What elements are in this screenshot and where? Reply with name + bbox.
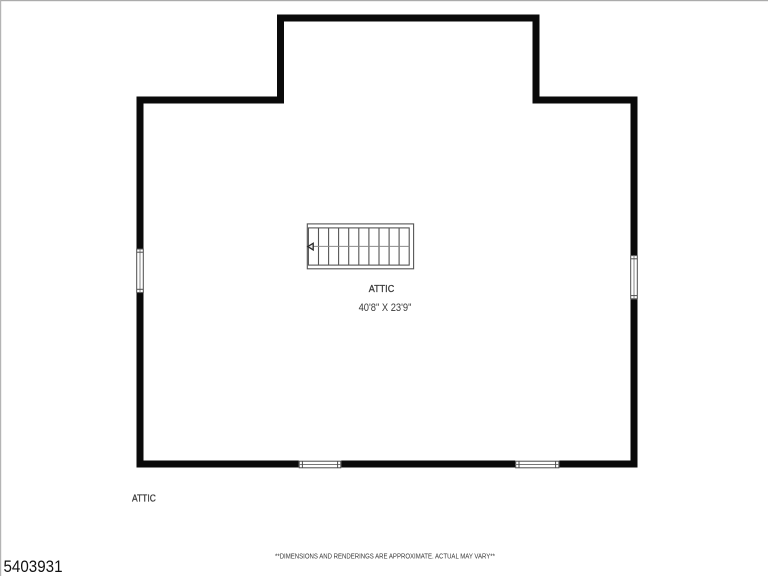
svg-text:40'8" X 23'9": 40'8" X 23'9" [359, 302, 412, 314]
svg-text:ATTIC: ATTIC [369, 284, 395, 295]
svg-text:5403931: 5403931 [4, 557, 63, 576]
svg-text:ATTIC: ATTIC [132, 494, 156, 505]
svg-text:**DIMENSIONS AND RENDERINGS AR: **DIMENSIONS AND RENDERINGS ARE APPROXIM… [275, 553, 495, 560]
